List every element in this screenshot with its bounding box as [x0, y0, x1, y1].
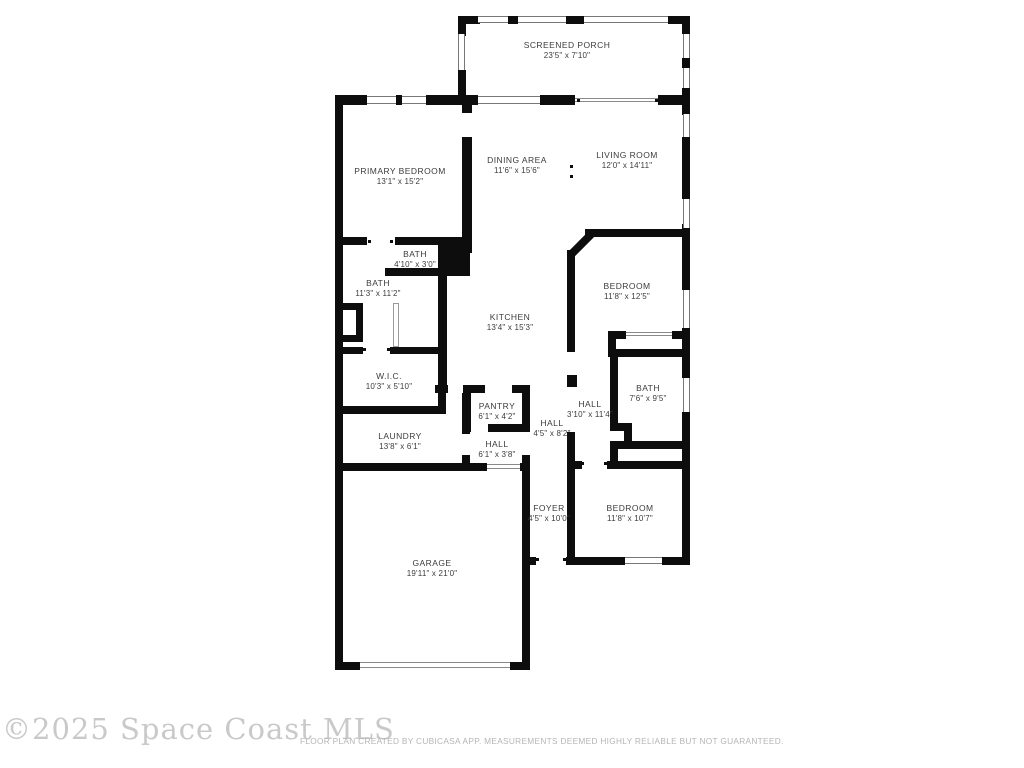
door-tick [387, 348, 390, 351]
door-tick [604, 462, 607, 465]
room-name: BATH [394, 249, 436, 260]
wall-segment [522, 455, 530, 471]
window [478, 16, 508, 23]
wall-segment [435, 385, 448, 393]
wall-segment [522, 470, 530, 662]
room-dimensions: 13'1" x 15'2" [354, 177, 445, 188]
room-dimensions: 11'6" x 15'6" [487, 166, 547, 177]
room-dimensions: 7'6" x 9'5" [629, 394, 666, 405]
room-name: HALL [533, 418, 570, 429]
wall-segment [443, 245, 470, 276]
wall-segment [488, 424, 530, 432]
garage-entry-door [487, 464, 520, 469]
wall-segment [682, 24, 690, 34]
window [683, 114, 690, 137]
wall-segment [566, 16, 584, 24]
room-label-hall-right: HALL3'10" x 11'4" [567, 399, 613, 421]
room-name: LAUNDRY [378, 431, 422, 442]
room-name: SCREENED PORCH [524, 40, 611, 51]
room-name: BATH [355, 278, 400, 289]
room-dimensions: 6'1" x 4'2" [478, 412, 515, 423]
wall-segment [438, 347, 446, 409]
room-label-hall-lower: HALL6'1" x 3'8" [478, 439, 515, 461]
window [683, 290, 690, 328]
wall-segment [567, 250, 575, 352]
wall-segment [390, 347, 447, 354]
window [478, 96, 540, 104]
door-tick [563, 558, 566, 561]
room-name: PANTRY [478, 401, 515, 412]
window [584, 16, 668, 23]
door-tick [570, 165, 573, 168]
wall-segment [672, 331, 688, 339]
wall-segment [682, 412, 690, 565]
room-label-bedroom-1: BEDROOM11'8" x 12'5" [603, 281, 650, 303]
room-label-laundry: LAUNDRY13'8" x 6'1" [378, 431, 422, 453]
room-dimensions: 23'5" x 7'10" [524, 51, 611, 62]
wall-segment [607, 461, 690, 469]
wall-segment [462, 393, 470, 434]
wall-segment [610, 423, 632, 431]
shower-door [393, 303, 399, 347]
wall-segment [508, 16, 518, 24]
door-tick [581, 462, 584, 465]
wall-segment [540, 95, 575, 105]
door-tick [655, 99, 658, 102]
wall-segment [335, 237, 367, 245]
wall-segment [462, 103, 472, 113]
wall-segment [585, 229, 688, 237]
room-dimensions: 4'5" x 10'0" [528, 514, 570, 525]
window [683, 199, 690, 228]
window [683, 68, 690, 88]
room-dimensions: 6'1" x 3'8" [478, 450, 515, 461]
wall-segment [462, 137, 472, 253]
room-name: LIVING ROOM [596, 150, 658, 161]
window [367, 96, 396, 104]
room-dimensions: 13'4" x 15'3" [487, 323, 533, 334]
wall-segment [682, 137, 690, 199]
wall-segment [573, 557, 625, 565]
room-dimensions: 11'3" x 11'2" [355, 289, 400, 300]
room-dimensions: 19'11" x 21'0" [407, 569, 458, 580]
wall-segment [682, 58, 690, 68]
wall-segment [335, 95, 343, 670]
room-dimensions: 4'10" x 3'0" [394, 260, 436, 271]
room-label-hall-center: HALL4'5" x 8'2" [533, 418, 570, 440]
wall-segment [610, 441, 690, 449]
room-name: BATH [629, 383, 666, 394]
sliding-door [575, 98, 658, 102]
room-name: GARAGE [407, 558, 458, 569]
room-label-pantry: PANTRY6'1" x 4'2" [478, 401, 515, 423]
wall-segment [335, 662, 360, 670]
room-label-bath-powder: BATH4'10" x 3'0" [394, 249, 436, 271]
wall-segment [335, 347, 363, 354]
window [683, 34, 690, 58]
room-dimensions: 11'8" x 12'5" [603, 292, 650, 303]
wall-segment [522, 557, 536, 565]
door-tick [577, 99, 580, 102]
room-dimensions: 11'8" x 10'7" [606, 514, 653, 525]
room-label-bedroom-2: BEDROOM11'8" x 10'7" [606, 503, 653, 525]
wall-segment [682, 95, 690, 115]
garage-door [360, 662, 510, 668]
room-label-screened-porch: SCREENED PORCH23'5" x 7'10" [524, 40, 611, 62]
room-dimensions: 12'0" x 14'11" [596, 161, 658, 172]
wall-segment [356, 310, 363, 335]
room-label-bath-primary: BATH11'3" x 11'2" [355, 278, 400, 300]
room-dimensions: 3'10" x 11'4" [567, 410, 613, 421]
room-name: BEDROOM [603, 281, 650, 292]
room-name: FOYER [528, 503, 570, 514]
wall-segment [395, 237, 472, 245]
wall-segment [462, 455, 470, 471]
room-dimensions: 10'3" x 5'10" [366, 382, 412, 393]
disclaimer-text: FLOOR PLAN CREATED BY CUBICASA APP. MEAS… [300, 736, 784, 746]
window [458, 34, 465, 70]
room-name: W.I.C. [366, 371, 412, 382]
door-tick [390, 240, 393, 243]
wall-segment [335, 335, 363, 342]
wall-segment-diagonal [569, 232, 594, 257]
room-name: HALL [567, 399, 613, 410]
room-label-bath-2: BATH7'6" x 9'5" [629, 383, 666, 405]
closet-door [626, 332, 672, 336]
wall-segment [335, 303, 363, 310]
room-dimensions: 4'5" x 8'2" [533, 429, 570, 440]
room-dimensions: 13'8" x 6'1" [378, 442, 422, 453]
room-label-primary-bedroom: PRIMARY BEDROOM13'1" x 15'2" [354, 166, 445, 188]
wall-segment [668, 16, 690, 24]
room-label-dining-area: DINING AREA11'6" x 15'6" [487, 155, 547, 177]
floor-plan-page: SCREENED PORCH23'5" x 7'10"PRIMARY BEDRO… [0, 0, 1024, 768]
door-tick [363, 348, 366, 351]
room-name: BEDROOM [606, 503, 653, 514]
wall-segment [608, 349, 688, 357]
room-name: PRIMARY BEDROOM [354, 166, 445, 177]
room-name: DINING AREA [487, 155, 547, 166]
window [402, 96, 426, 104]
door-tick [368, 240, 371, 243]
window [625, 557, 662, 564]
wall-segment [567, 375, 577, 387]
room-label-kitchen: KITCHEN13'4" x 15'3" [487, 312, 533, 334]
room-name: HALL [478, 439, 515, 450]
room-label-garage: GARAGE19'11" x 21'0" [407, 558, 458, 580]
door-tick [536, 558, 539, 561]
window [683, 378, 690, 412]
wall-segment [458, 70, 466, 96]
room-label-foyer: FOYER4'5" x 10'0" [528, 503, 570, 525]
wall-segment [510, 662, 530, 670]
wall-segment [682, 228, 690, 290]
room-label-living-room: LIVING ROOM12'0" x 14'11" [596, 150, 658, 172]
door-tick [570, 175, 573, 178]
wall-segment [335, 406, 446, 414]
wall-segment [458, 16, 480, 24]
window [518, 16, 566, 23]
room-name: KITCHEN [487, 312, 533, 323]
room-label-wic: W.I.C.10'3" x 5'10" [366, 371, 412, 393]
